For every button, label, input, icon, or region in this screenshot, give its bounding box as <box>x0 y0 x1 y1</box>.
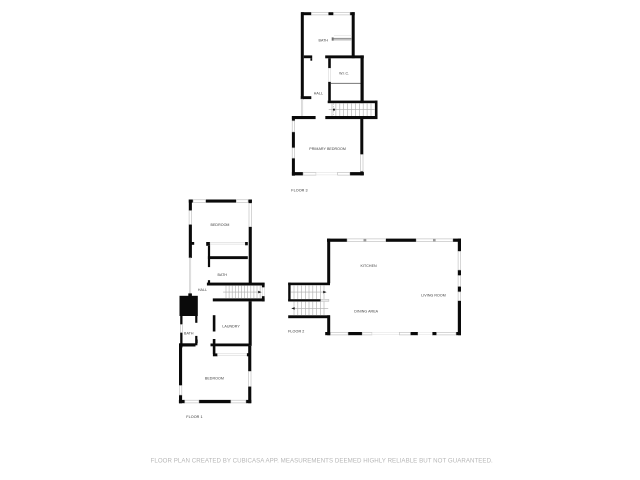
svg-text:FLOOR PLAN CREATED BY CUBICASA: FLOOR PLAN CREATED BY CUBICASA APP. MEAS… <box>151 457 493 464</box>
svg-text:KITCHEN: KITCHEN <box>360 264 377 268</box>
svg-text:DINING AREA: DINING AREA <box>354 310 378 314</box>
svg-text:HALL: HALL <box>198 288 207 292</box>
svg-text:BATH: BATH <box>184 331 194 335</box>
svg-text:LAUNDRY: LAUNDRY <box>222 325 240 329</box>
svg-text:FLOOR 1: FLOOR 1 <box>186 415 202 419</box>
svg-text:LIVING ROOM: LIVING ROOM <box>421 293 446 297</box>
svg-text:FLOOR 2: FLOOR 2 <box>288 330 304 334</box>
svg-text:BATH: BATH <box>218 273 228 277</box>
svg-text:W.I.C.: W.I.C. <box>339 71 349 75</box>
svg-text:PRIMARY BEDROOM: PRIMARY BEDROOM <box>309 147 346 151</box>
svg-text:BEDROOM: BEDROOM <box>211 223 230 227</box>
svg-text:BEDROOM: BEDROOM <box>205 377 224 381</box>
svg-text:BATH: BATH <box>319 39 329 43</box>
svg-text:HALL: HALL <box>314 91 323 95</box>
svg-text:FLOOR 3: FLOOR 3 <box>291 188 307 192</box>
